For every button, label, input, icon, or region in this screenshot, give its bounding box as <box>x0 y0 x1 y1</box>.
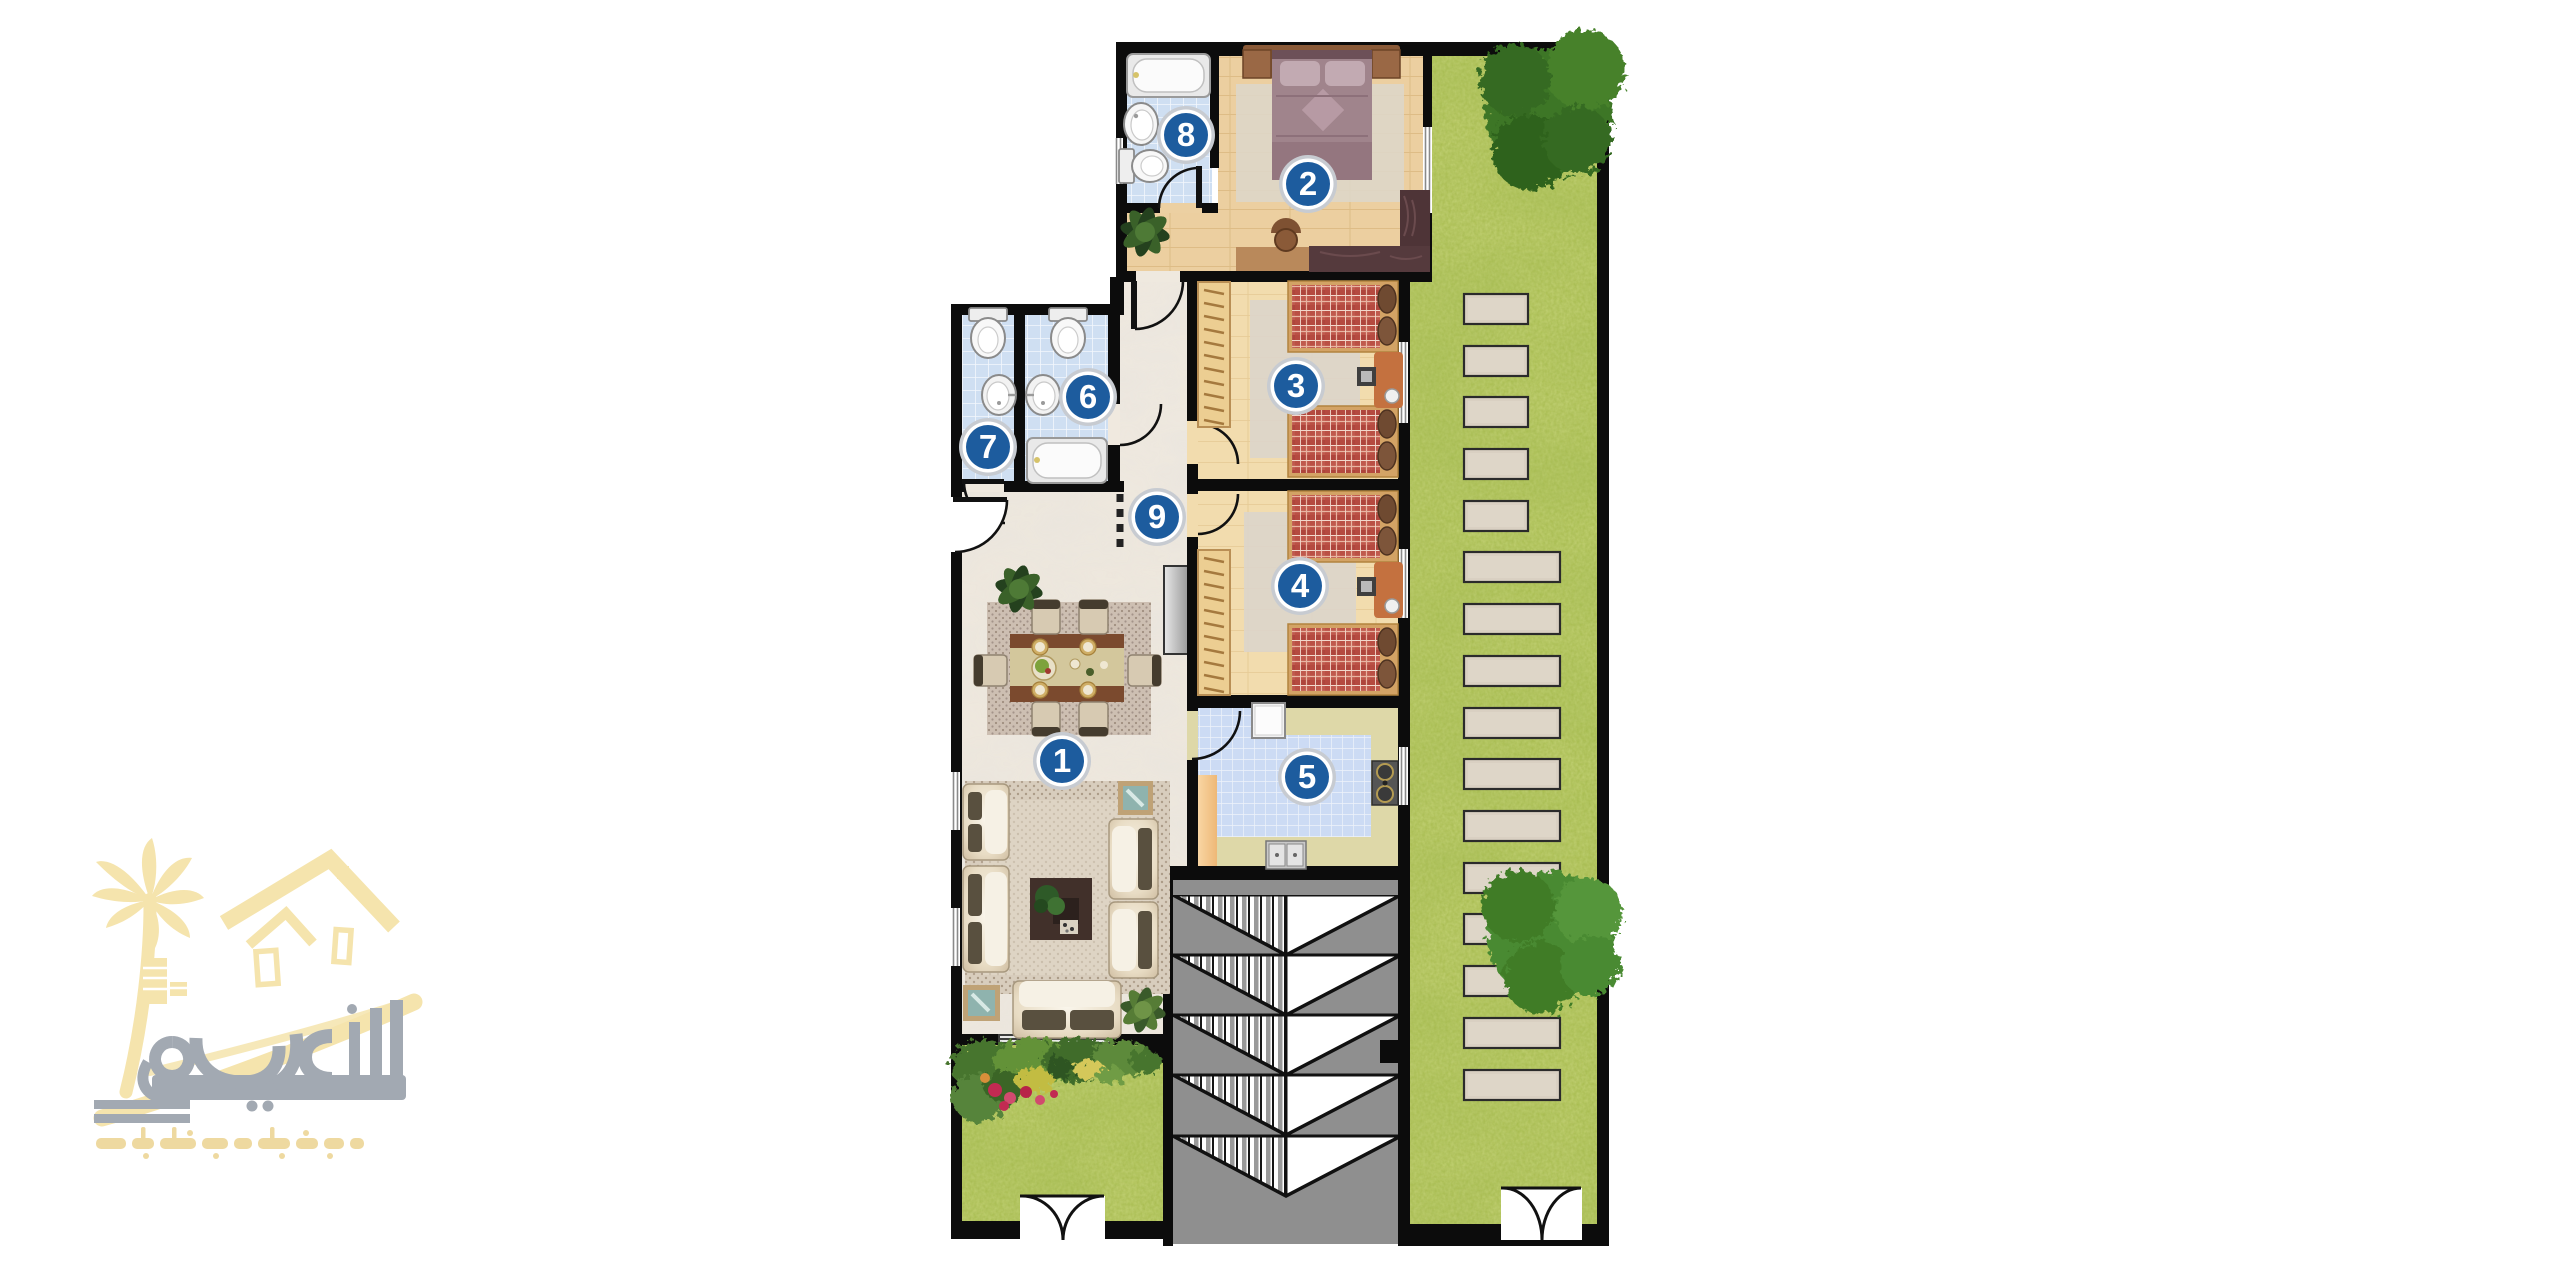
svg-text:2: 2 <box>1299 165 1317 202</box>
svg-text:8: 8 <box>1177 116 1195 153</box>
svg-text:4: 4 <box>1291 567 1310 604</box>
svg-text:3: 3 <box>1287 367 1305 404</box>
svg-text:5: 5 <box>1298 758 1316 795</box>
svg-text:9: 9 <box>1148 498 1166 535</box>
svg-text:6: 6 <box>1079 378 1097 415</box>
svg-text:1: 1 <box>1053 742 1071 779</box>
svg-text:7: 7 <box>979 428 997 465</box>
